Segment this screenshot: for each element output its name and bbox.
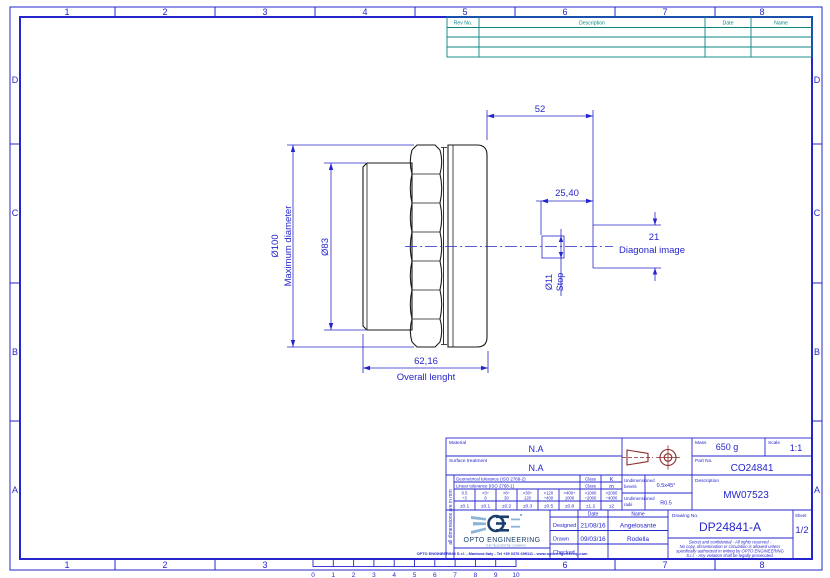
dim-25-40: 25,40 (555, 188, 579, 199)
drawn-label: Drawn (553, 537, 569, 543)
ruler-mark: 3 (372, 572, 376, 578)
svg-text:÷3: ÷3 (462, 496, 467, 501)
grid-col-label: 1 (64, 7, 69, 17)
outer-border (10, 7, 822, 570)
revision-table (447, 17, 812, 57)
grid-col-label: 8 (759, 7, 764, 17)
ruler-mark: 1 (331, 572, 335, 578)
part-no-label: Part No. (695, 458, 713, 464)
revision-table-headers: Rev No. Description Date Name (454, 21, 788, 27)
ruler-mark: 10 (512, 572, 520, 578)
svg-text:÷400: ÷400 (544, 496, 554, 501)
class-label: Class (585, 484, 597, 489)
company-footer: OPTO ENGINEERING S.r.l. - Mantova Italy … (417, 551, 588, 556)
grid-col-label: 3 (262, 7, 267, 17)
grid-col-label: 8 (759, 560, 764, 570)
svg-text:120: 120 (524, 496, 532, 501)
svg-text:±0.1: ±0.1 (481, 504, 491, 510)
designed-date: 21/08/16 (580, 523, 606, 530)
grid-col-label: 7 (662, 560, 667, 570)
grid-col-label: 2 (162, 7, 167, 17)
description-label: Description (695, 478, 719, 484)
scale-ruler: 0 1 2 3 4 5 6 7 8 9 10 (294, 558, 521, 578)
confidential-note: Secret and confidential - All rights res… (676, 540, 784, 559)
surface-treatment-label: Surface treatment (449, 458, 488, 464)
scale-label: Scale (768, 440, 780, 446)
ruler-mark: 4 (392, 572, 396, 578)
engineering-drawing-sheet: 1 2 3 4 5 6 7 8 1 2 3 4 5 6 7 8 D C B A … (0, 0, 830, 578)
name-column-header: Name (631, 512, 645, 518)
grid-col-label: 6 (562, 7, 567, 17)
drawn-name: Rodella (627, 536, 649, 543)
overall-length-label: Overall lenght (397, 372, 456, 383)
ruler-mark: 6 (433, 572, 437, 578)
radii-value: R0.5 (660, 501, 672, 507)
surface-treatment-value: N.A (528, 463, 543, 473)
svg-text:±0.2: ±0.2 (502, 504, 512, 510)
dimensions (287, 110, 661, 373)
name-header: Name (774, 21, 788, 27)
svg-text:÷4000: ÷4000 (606, 496, 618, 501)
material-value: N.A (528, 444, 543, 454)
svg-text:±1.2: ±1.2 (586, 504, 596, 510)
inner-border (20, 17, 812, 559)
grid-col-label: 6 (562, 560, 567, 570)
mass-label: Mass (695, 440, 707, 446)
dim-d11: Ø11 (544, 274, 554, 290)
ruler-mark: 9 (494, 572, 498, 578)
svg-text:±0.3: ±0.3 (523, 504, 533, 510)
max-diameter-label: Maximum diameter (283, 206, 294, 287)
grid-row-label: C (814, 208, 821, 218)
dim-d100: Ø100 (270, 234, 281, 257)
grid-col-label: 1 (64, 560, 69, 570)
opto-logo-tagline: THE TELECENTRIC COMPANY (486, 544, 527, 548)
part-side-view (363, 145, 487, 347)
geom-class-value: K (610, 477, 614, 483)
diagonal-image-label: Diagonal image (619, 245, 685, 256)
ruler-mark: 2 (352, 572, 356, 578)
grid-row-label: A (814, 485, 820, 495)
svg-text:1000: 1000 (565, 496, 575, 501)
grid-row-label: C (12, 208, 19, 218)
scale-value: 1:1 (790, 443, 803, 453)
grid-col-label: 3 (262, 560, 267, 570)
grid-row-label: D (814, 75, 821, 85)
grid-row-label: A (12, 485, 18, 495)
svg-text:6: 6 (484, 496, 487, 501)
date-header: Date (723, 21, 734, 27)
tolerance-values: ±0.1 ±0.1 ±0.2 ±0.3 ±0.5 ±0.8 ±1.2 ±2 (460, 504, 615, 510)
drawn-date: 09/03/16 (580, 536, 606, 543)
linear-class-value: m (609, 484, 614, 490)
mass-value: 650 g (716, 442, 739, 452)
sheet-frame (10, 7, 822, 570)
sheet-label: Sheet (795, 513, 807, 518)
grid-row-label: B (814, 347, 820, 357)
svg-text:30: 30 (504, 496, 509, 501)
radii-label: Undimensioned (624, 496, 655, 501)
sheet-value: 1/2 (795, 525, 808, 536)
radii-label: radii (624, 502, 632, 507)
stop-label: Stop (555, 273, 565, 292)
drawing-no-label: Drawing No. (672, 513, 698, 519)
dimension-labels: 52 25,40 21 Diagonal image 62,16 Overall… (270, 104, 685, 383)
bevels-label: Undimensioned (624, 478, 655, 483)
dim-62-16: 62,16 (414, 356, 438, 367)
tolerance-ranges: 0.5÷3 >3÷6 >6÷30 >30÷120 >120÷400 >400÷1… (462, 491, 618, 501)
material-label: Material (449, 440, 466, 446)
description-value: MW07523 (723, 490, 769, 501)
date-column-header: Date (588, 512, 599, 518)
svg-text:±2: ±2 (609, 504, 615, 510)
grid-dividers (10, 7, 822, 570)
svg-text:S.r.l. - Any violation shall b: S.r.l. - Any violation shall be legally … (686, 553, 773, 558)
dim-52: 52 (535, 104, 546, 115)
dimension-arrows (291, 114, 657, 370)
grid-labels: 1 2 3 4 5 6 7 8 1 2 3 4 5 6 7 8 D C B A … (12, 7, 821, 570)
opto-logo: OPTO ENGINEERING THE TELECENTRIC COMPANY (463, 514, 540, 548)
designed-label: Designed (553, 523, 576, 529)
linear-tolerance-label: Linear tolerance (ISO 2768-1) (456, 484, 515, 489)
dim-21: 21 (649, 232, 660, 243)
svg-text:±0.1: ±0.1 (460, 504, 470, 510)
svg-text:±0.5: ±0.5 (544, 504, 554, 510)
grid-col-label: 5 (462, 7, 467, 17)
drawing-no-value: DP24841-A (699, 520, 761, 534)
ruler-mark: 0 (311, 572, 315, 578)
svg-text:±0.8: ±0.8 (565, 504, 575, 510)
grid-row-label: D (12, 75, 19, 85)
opto-logo-icon (471, 514, 522, 534)
bevels-value: 0.5x45° (657, 483, 676, 489)
grid-col-label: 7 (662, 7, 667, 17)
grid-col-label: 2 (162, 560, 167, 570)
class-label: Class (585, 477, 597, 482)
grid-row-label: B (12, 347, 18, 357)
projection-symbol (622, 446, 680, 470)
bevels-label: bevels (624, 484, 637, 489)
ruler-mark: 5 (413, 572, 417, 578)
grid-col-label: 4 (362, 7, 367, 17)
geometrical-tolerance-label: Geometrical tolerance (ISO 2768-2) (456, 477, 526, 482)
rev-no-header: Rev No. (454, 21, 473, 27)
designed-name: Angelosante (620, 523, 657, 530)
svg-text:÷2000: ÷2000 (585, 496, 597, 501)
ruler-mark: 7 (453, 572, 457, 578)
description-header: Description (579, 21, 605, 27)
dim-d83: Ø83 (320, 238, 331, 256)
ruler-mark: 8 (474, 572, 478, 578)
units-note: all dimensions are in mm (448, 489, 454, 544)
part-no-value: CO24841 (731, 463, 774, 474)
